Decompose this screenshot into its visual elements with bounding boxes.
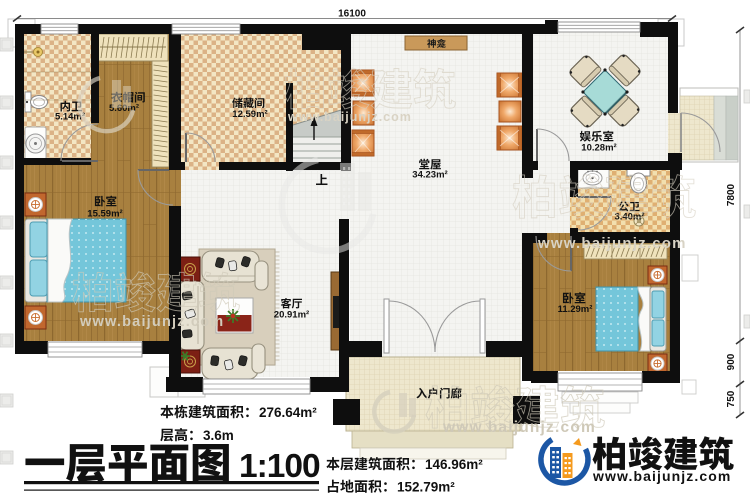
svg-text:10.28m²: 10.28m² [581,143,616,154]
svg-text:www.baijunjz.com: www.baijunjz.com [537,235,687,252]
svg-text:146.96m²: 146.96m² [425,457,483,472]
svg-text:750: 750 [726,390,737,407]
svg-text:276.64m²: 276.64m² [259,405,317,420]
svg-text:12.59m²: 12.59m² [232,109,267,120]
svg-text:www.baijunjz.com: www.baijunjz.com [79,314,224,330]
svg-text:152.79m²: 152.79m² [397,480,455,495]
svg-text:www.baijunjz.com: www.baijunjz.com [442,419,596,436]
svg-text:34.23m²: 34.23m² [412,170,447,181]
svg-text:www.baijunjz.com: www.baijunjz.com [287,110,412,124]
svg-text:11.29m²: 11.29m² [558,304,593,315]
svg-text:www.baijunjz.com: www.baijunjz.com [592,468,731,484]
svg-text:20.91m²: 20.91m² [274,310,309,321]
svg-text:1:100: 1:100 [239,448,320,485]
svg-text:7800: 7800 [726,183,737,206]
svg-text:15.59m²: 15.59m² [87,209,122,220]
svg-text:16100: 16100 [338,9,366,20]
svg-text:900: 900 [726,353,737,370]
svg-text:3.6m: 3.6m [203,428,234,443]
